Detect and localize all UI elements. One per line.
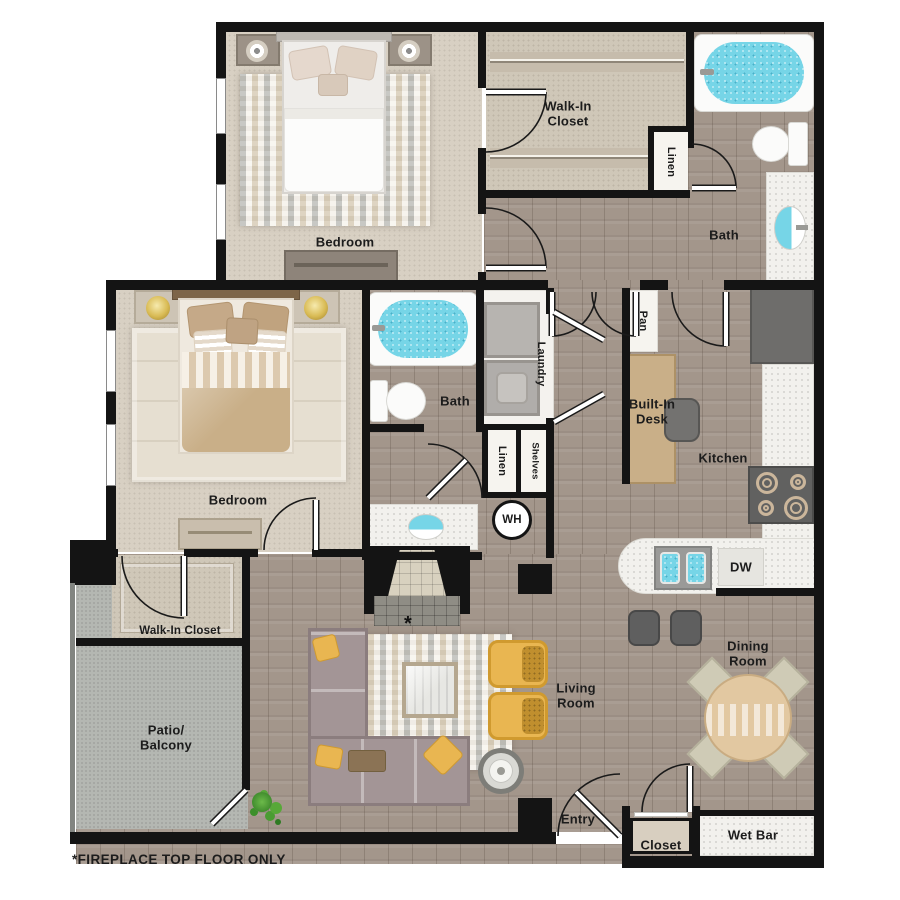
label-wet-bar: Wet Bar <box>728 828 778 843</box>
wall <box>242 549 250 645</box>
toilet-bowl <box>386 382 426 420</box>
window <box>216 78 226 134</box>
kitchen-island <box>618 538 816 594</box>
toilet-bowl <box>752 126 790 162</box>
wall-post <box>70 540 116 585</box>
vanity-sink <box>408 514 444 540</box>
wall <box>622 288 630 484</box>
label-linen-top: Linen <box>665 147 677 177</box>
coffee-table <box>402 662 458 718</box>
entry-threshold <box>556 832 622 844</box>
gold-lamp <box>304 296 328 320</box>
bathtub-water <box>378 300 468 358</box>
burner <box>784 496 808 520</box>
pillow <box>225 317 258 345</box>
dining-table <box>704 674 792 762</box>
label-water-heater: WH <box>502 514 522 526</box>
label-entry: Entry <box>561 812 595 827</box>
wall <box>216 22 226 290</box>
burner <box>790 474 806 490</box>
wall <box>216 22 824 32</box>
throw-pillow <box>348 750 386 772</box>
dresser-handle <box>294 263 388 267</box>
bed-duvet <box>284 108 384 192</box>
wall <box>76 638 246 646</box>
table-runner <box>706 704 792 736</box>
closet-rod <box>490 52 684 72</box>
wall <box>362 552 482 560</box>
wall <box>546 432 554 558</box>
bathtub-water <box>704 42 804 104</box>
label-bedroom-left: Bedroom <box>209 493 267 508</box>
wall <box>622 856 824 868</box>
potted-plant <box>252 792 272 812</box>
label-pantry: Pan <box>637 311 649 332</box>
wall-post <box>518 564 552 594</box>
label-laundry: Laundry <box>535 342 547 387</box>
sink-basin <box>686 552 706 584</box>
wall <box>242 645 250 790</box>
patio-railing <box>70 583 75 832</box>
label-dining-room: Dining Room <box>727 639 769 670</box>
wall <box>546 418 554 432</box>
throw-pillow <box>314 744 343 770</box>
label-bath-top: Bath <box>709 228 739 243</box>
dresser-handle <box>188 531 252 534</box>
closet-shelf <box>634 812 688 817</box>
window <box>106 424 116 486</box>
dresser <box>178 518 262 550</box>
wall <box>106 549 118 557</box>
accent-chair-back <box>522 646 544 682</box>
label-walk-in-closet-top: Walk-In Closet <box>544 99 591 130</box>
label-linen-hall: Linen <box>496 446 508 476</box>
sink-faucet <box>796 225 808 230</box>
tub-faucet <box>700 69 714 75</box>
burner <box>756 472 778 494</box>
wall <box>476 288 484 432</box>
washer <box>484 302 540 358</box>
label-walk-in-closet-left: Walk-In Closet <box>139 625 221 637</box>
table-lamp <box>246 40 268 62</box>
dryer-door <box>496 372 528 404</box>
wall <box>478 148 486 214</box>
bed-blanket <box>182 388 290 452</box>
accent-chair-back <box>522 698 544 734</box>
fireplace-hearth <box>374 596 460 626</box>
floor-plan: Bedroom Walk-In Closet Linen Bath Bedroo… <box>0 0 900 900</box>
label-patio-balcony: Patio/ Balcony <box>140 723 192 754</box>
label-dishwasher: DW <box>730 560 752 575</box>
wall <box>70 832 556 844</box>
burner <box>758 500 774 516</box>
wall <box>622 806 630 868</box>
floor-lamp-finial <box>497 767 505 775</box>
gold-lamp <box>146 296 170 320</box>
label-bath-mid: Bath <box>440 394 470 409</box>
tub-faucet <box>372 325 385 331</box>
wall <box>362 424 424 432</box>
wall <box>482 190 690 198</box>
refrigerator <box>750 288 814 364</box>
label-closet: Closet <box>641 838 682 853</box>
footnote: *FIREPLACE TOP FLOOR ONLY <box>72 852 286 867</box>
wall <box>692 810 814 816</box>
label-shelves: Shelves <box>530 442 541 479</box>
wall <box>546 288 554 314</box>
wall <box>716 588 824 596</box>
wall <box>724 280 814 290</box>
label-bedroom-top: Bedroom <box>316 235 374 250</box>
label-kitchen: Kitchen <box>698 451 747 466</box>
wall-post <box>518 798 552 832</box>
wall <box>362 288 370 558</box>
wall <box>478 22 486 88</box>
label-built-in-desk: Built-In Desk <box>629 397 675 428</box>
window <box>216 184 226 240</box>
wall <box>640 280 668 290</box>
sink-basin <box>660 552 680 584</box>
table-lamp <box>398 40 420 62</box>
bed-sheet-striped <box>182 352 290 392</box>
bar-stool <box>670 610 702 646</box>
window <box>106 330 116 392</box>
wall <box>814 22 824 868</box>
label-living-room: Living Room <box>556 681 595 712</box>
bar-stool <box>628 610 660 646</box>
closet-shelf-outline <box>120 563 234 633</box>
pillow <box>318 74 348 96</box>
kitchen-counter <box>762 364 814 562</box>
toilet-tank <box>788 122 808 166</box>
fireplace-asterisk: * <box>404 613 412 636</box>
wall <box>106 280 116 560</box>
